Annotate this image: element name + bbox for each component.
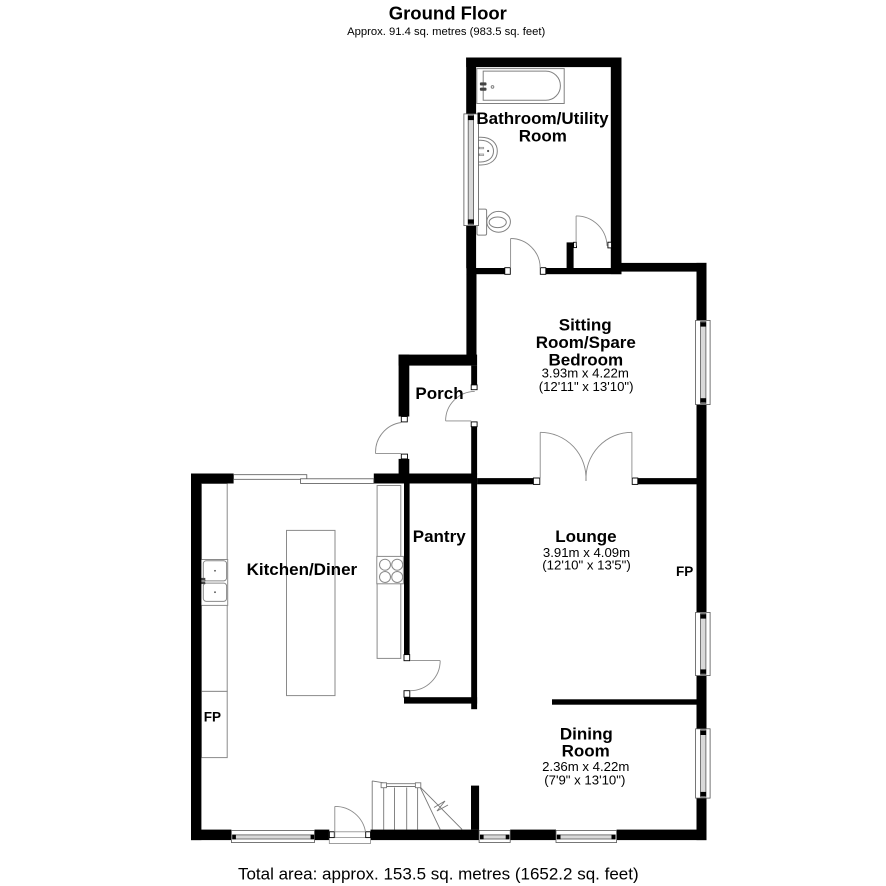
- svg-text:Pantry: Pantry: [413, 527, 466, 546]
- svg-text:Lounge: Lounge: [555, 527, 616, 546]
- svg-text:Room: Room: [562, 742, 610, 761]
- svg-text:(12'11" x 13'10"): (12'11" x 13'10"): [539, 379, 634, 394]
- svg-text:Sitting: Sitting: [559, 315, 612, 334]
- svg-text:Kitchen/Diner: Kitchen/Diner: [247, 560, 358, 579]
- svg-text:Bathroom/Utility: Bathroom/Utility: [476, 109, 609, 128]
- svg-text:Room/Spare: Room/Spare: [536, 333, 636, 352]
- svg-text:Approx. 91.4 sq. metres (983.5: Approx. 91.4 sq. metres (983.5 sq. feet): [347, 26, 545, 38]
- svg-text:Room: Room: [519, 126, 567, 145]
- svg-text:Total area: approx. 153.5 sq.: Total area: approx. 153.5 sq. metres (16…: [238, 865, 639, 884]
- svg-text:FP: FP: [204, 710, 221, 725]
- svg-text:FP: FP: [676, 564, 693, 579]
- svg-text:Porch: Porch: [415, 384, 463, 403]
- svg-text:Ground Floor: Ground Floor: [389, 3, 507, 24]
- svg-text:(7'9" x 13'10"): (7'9" x 13'10"): [544, 773, 625, 788]
- svg-text:(12'10" x 13'5"): (12'10" x 13'5"): [542, 558, 630, 573]
